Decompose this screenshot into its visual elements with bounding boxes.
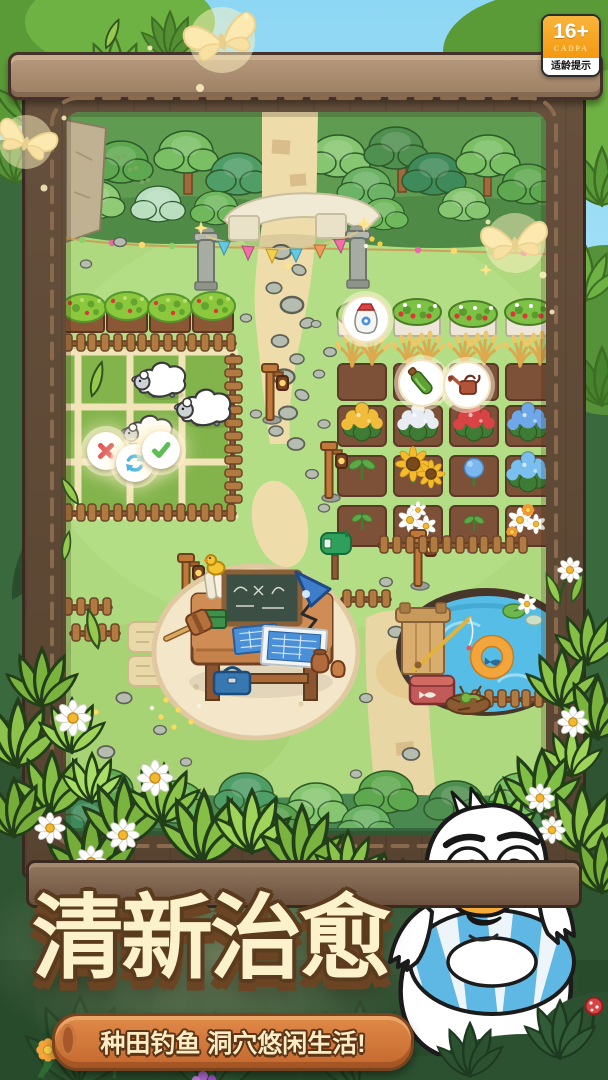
cross-icon xyxy=(94,439,118,463)
sheep-pen xyxy=(66,334,242,521)
stone-pillar xyxy=(346,225,370,288)
tagline-banner: 种田钓鱼 洞穴悠闲生活! xyxy=(52,1013,414,1071)
age-rating-panel: 16+ CADPA xyxy=(543,16,599,58)
headline: 清新治愈 xyxy=(20,892,400,988)
tagline-text: 种田钓鱼 洞穴悠闲生活! xyxy=(100,1024,365,1060)
age-rating-badge: 16+ CADPA 适龄提示 xyxy=(541,14,601,77)
fertilizer-bubble[interactable] xyxy=(338,291,394,347)
sunflower xyxy=(417,460,445,488)
check-icon xyxy=(149,438,173,462)
ad-canvas: 16+ CADPA 适龄提示 清新治愈 种田钓鱼 洞穴悠闲生活! xyxy=(0,0,608,1080)
log-end-cap xyxy=(60,1024,76,1056)
watering-can-bubble[interactable] xyxy=(439,357,495,413)
fertilizer-bag-icon xyxy=(355,304,377,333)
flower-plots xyxy=(338,402,546,553)
age-rating-value: 16+ xyxy=(543,21,599,43)
age-rating-org: CADPA xyxy=(543,43,599,54)
age-rating-caption: 适龄提示 xyxy=(543,58,599,75)
hydrangea xyxy=(465,459,484,478)
frame-top-bar xyxy=(8,52,603,100)
cliff-rock xyxy=(66,120,106,242)
chalkboard xyxy=(224,572,300,624)
blue-toolbox[interactable] xyxy=(214,668,250,695)
confirm-button[interactable] xyxy=(142,431,180,469)
